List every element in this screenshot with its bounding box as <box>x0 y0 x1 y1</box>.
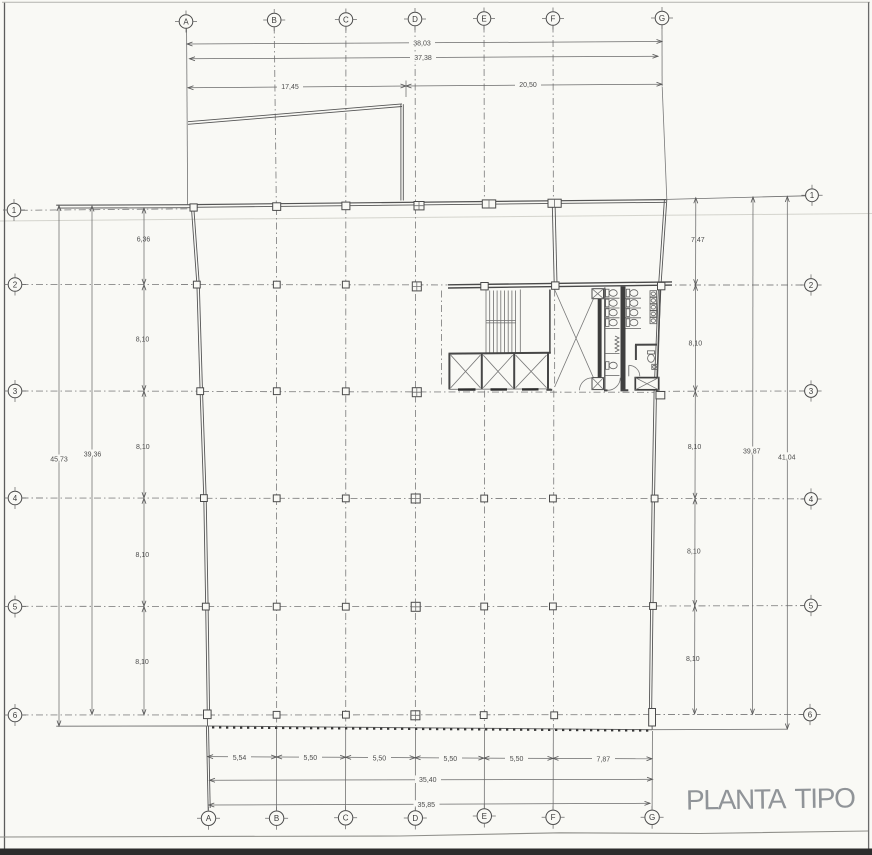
svg-text:8,10: 8,10 <box>688 444 702 451</box>
svg-text:F: F <box>551 14 556 23</box>
svg-text:A: A <box>206 814 212 823</box>
svg-text:G: G <box>659 14 665 23</box>
svg-text:3: 3 <box>13 387 18 396</box>
svg-text:A: A <box>183 17 189 26</box>
svg-text:G: G <box>649 813 655 822</box>
svg-text:39,36: 39,36 <box>84 452 102 459</box>
svg-text:7,47: 7,47 <box>691 237 705 244</box>
svg-text:PLANTA TIPO: PLANTA TIPO <box>686 782 856 815</box>
svg-text:5,50: 5,50 <box>373 756 387 763</box>
svg-text:1: 1 <box>12 206 17 215</box>
svg-text:20,50: 20,50 <box>519 82 537 89</box>
svg-text:5,54: 5,54 <box>233 755 247 762</box>
svg-text:8,10: 8,10 <box>688 340 702 347</box>
svg-text:D: D <box>412 814 418 823</box>
svg-text:8,10: 8,10 <box>135 552 149 559</box>
svg-text:4: 4 <box>13 494 18 503</box>
svg-text:C: C <box>343 814 349 823</box>
svg-text:45,73: 45,73 <box>50 457 68 464</box>
svg-text:6,36: 6,36 <box>137 237 151 244</box>
svg-text:E: E <box>482 812 487 821</box>
svg-text:D: D <box>412 15 418 24</box>
svg-text:38,03: 38,03 <box>413 40 431 47</box>
svg-text:5: 5 <box>13 602 18 611</box>
svg-text:1: 1 <box>810 191 815 200</box>
svg-text:5,50: 5,50 <box>303 755 317 762</box>
svg-text:4: 4 <box>809 495 814 504</box>
svg-text:3: 3 <box>809 387 814 396</box>
svg-text:35,40: 35,40 <box>419 777 437 784</box>
svg-text:8,10: 8,10 <box>135 659 149 666</box>
svg-text:B: B <box>274 814 279 823</box>
svg-text:17,45: 17,45 <box>281 84 299 91</box>
svg-text:37,38: 37,38 <box>414 55 432 62</box>
svg-text:8,10: 8,10 <box>136 444 150 451</box>
svg-text:5: 5 <box>809 601 814 610</box>
svg-text:8,10: 8,10 <box>687 548 701 555</box>
svg-text:41,04: 41,04 <box>778 454 796 461</box>
svg-text:6: 6 <box>13 711 18 720</box>
svg-text:2: 2 <box>13 280 18 289</box>
svg-text:2: 2 <box>809 281 814 290</box>
svg-text:8,10: 8,10 <box>136 337 150 344</box>
svg-text:B: B <box>272 16 277 25</box>
svg-text:E: E <box>481 14 486 23</box>
svg-text:5,50: 5,50 <box>510 756 524 763</box>
svg-text:39,87: 39,87 <box>743 449 761 456</box>
svg-text:5,50: 5,50 <box>443 756 457 763</box>
svg-text:7,87: 7,87 <box>596 757 610 764</box>
svg-text:8,10: 8,10 <box>686 656 700 663</box>
svg-text:C: C <box>343 15 349 24</box>
svg-text:6: 6 <box>808 710 813 719</box>
svg-text:35,85: 35,85 <box>418 802 436 809</box>
svg-text:F: F <box>551 813 556 822</box>
